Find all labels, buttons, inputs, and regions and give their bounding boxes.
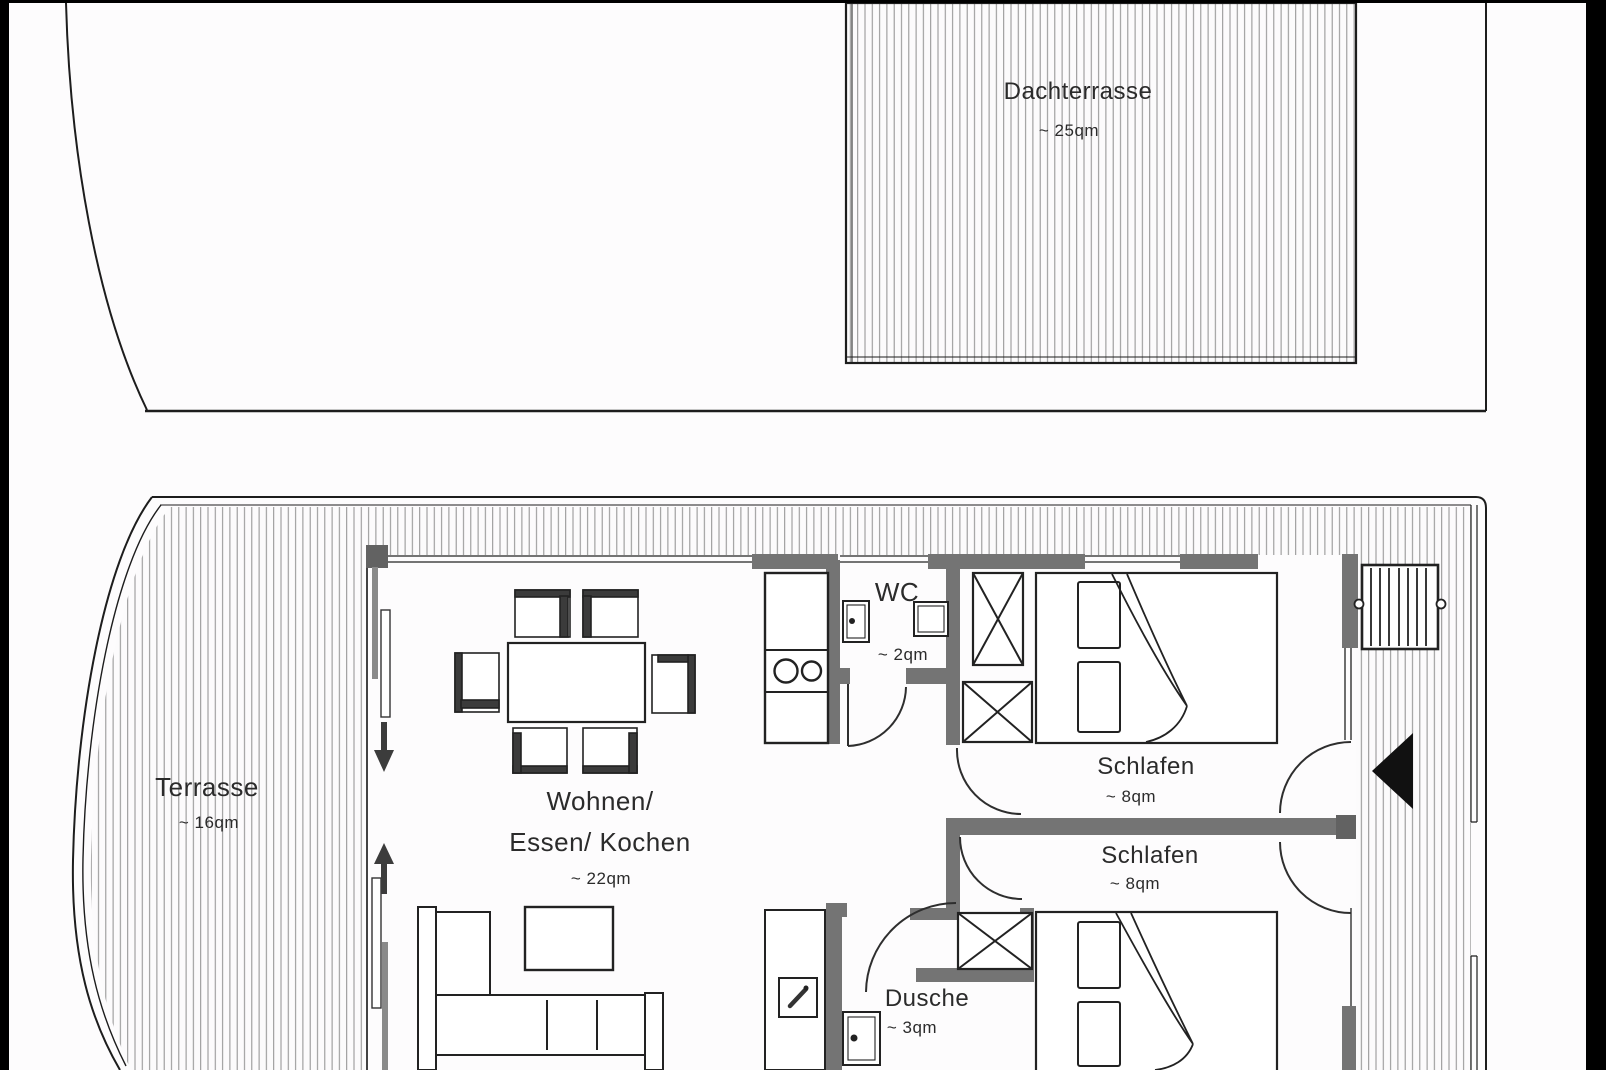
room-label-living-2: Essen/ Kochen [509, 827, 690, 857]
floor-plan-image: Dachterrasse ~ 25qm [0, 0, 1606, 1070]
room-area-dachterrasse: ~ 25qm [1039, 121, 1099, 140]
pillow-icon [1078, 922, 1120, 988]
kitchen-counter [765, 573, 828, 743]
wardrobe-icon [973, 573, 1023, 665]
room-area-bedroom1: ~ 8qm [1106, 787, 1156, 806]
bed-icon [1036, 573, 1277, 743]
coffee-table [525, 907, 613, 970]
room-label-bedroom1: Schlafen [1097, 753, 1194, 780]
dining-chair [455, 653, 499, 712]
hob-burner-icon [775, 660, 798, 683]
dining-chair [513, 728, 567, 773]
wardrobe-icon [963, 682, 1032, 742]
room-label-bedroom2: Schlafen [1101, 842, 1198, 869]
frame-border-left [0, 0, 9, 1070]
stairs-icon [1355, 565, 1446, 649]
room-label-wc: WC [875, 577, 919, 607]
floor-plan-svg: Dachterrasse ~ 25qm [0, 0, 1606, 1070]
dining-table [508, 643, 645, 722]
room-label-dusche: Dusche [885, 985, 969, 1012]
dining-chair [652, 655, 695, 713]
roof-terrace-hatch [846, 3, 1356, 363]
dining-chair [583, 728, 637, 773]
pillow-icon [1078, 582, 1120, 648]
frame-border-right [1586, 0, 1606, 1070]
hob-burner-icon [802, 662, 821, 681]
vanity-cabinet [765, 910, 825, 1070]
room-area-terrasse: ~ 16qm [179, 813, 239, 832]
shower-tray-icon [958, 913, 1032, 969]
room-label-terrasse: Terrasse [155, 772, 259, 802]
room-area-wc: ~ 2qm [878, 645, 928, 664]
room-area-living: ~ 22qm [571, 869, 631, 888]
top-walkway-hatch [367, 507, 1356, 555]
dining-chair [515, 590, 570, 637]
room-area-bedroom2: ~ 8qm [1110, 874, 1160, 893]
dining-chair [583, 590, 638, 637]
pillow-icon [1078, 1002, 1120, 1066]
toilet-icon [843, 1012, 880, 1065]
room-area-dusche: ~ 3qm [887, 1018, 937, 1037]
toilet-icon [843, 601, 869, 642]
sink-icon [914, 602, 948, 636]
bed-icon [1036, 912, 1277, 1070]
frame-border-top [0, 0, 1606, 3]
room-label-living-1: Wohnen/ [546, 786, 653, 816]
pillow-icon [1078, 662, 1120, 732]
room-label-dachterrasse: Dachterrasse [1004, 78, 1153, 105]
